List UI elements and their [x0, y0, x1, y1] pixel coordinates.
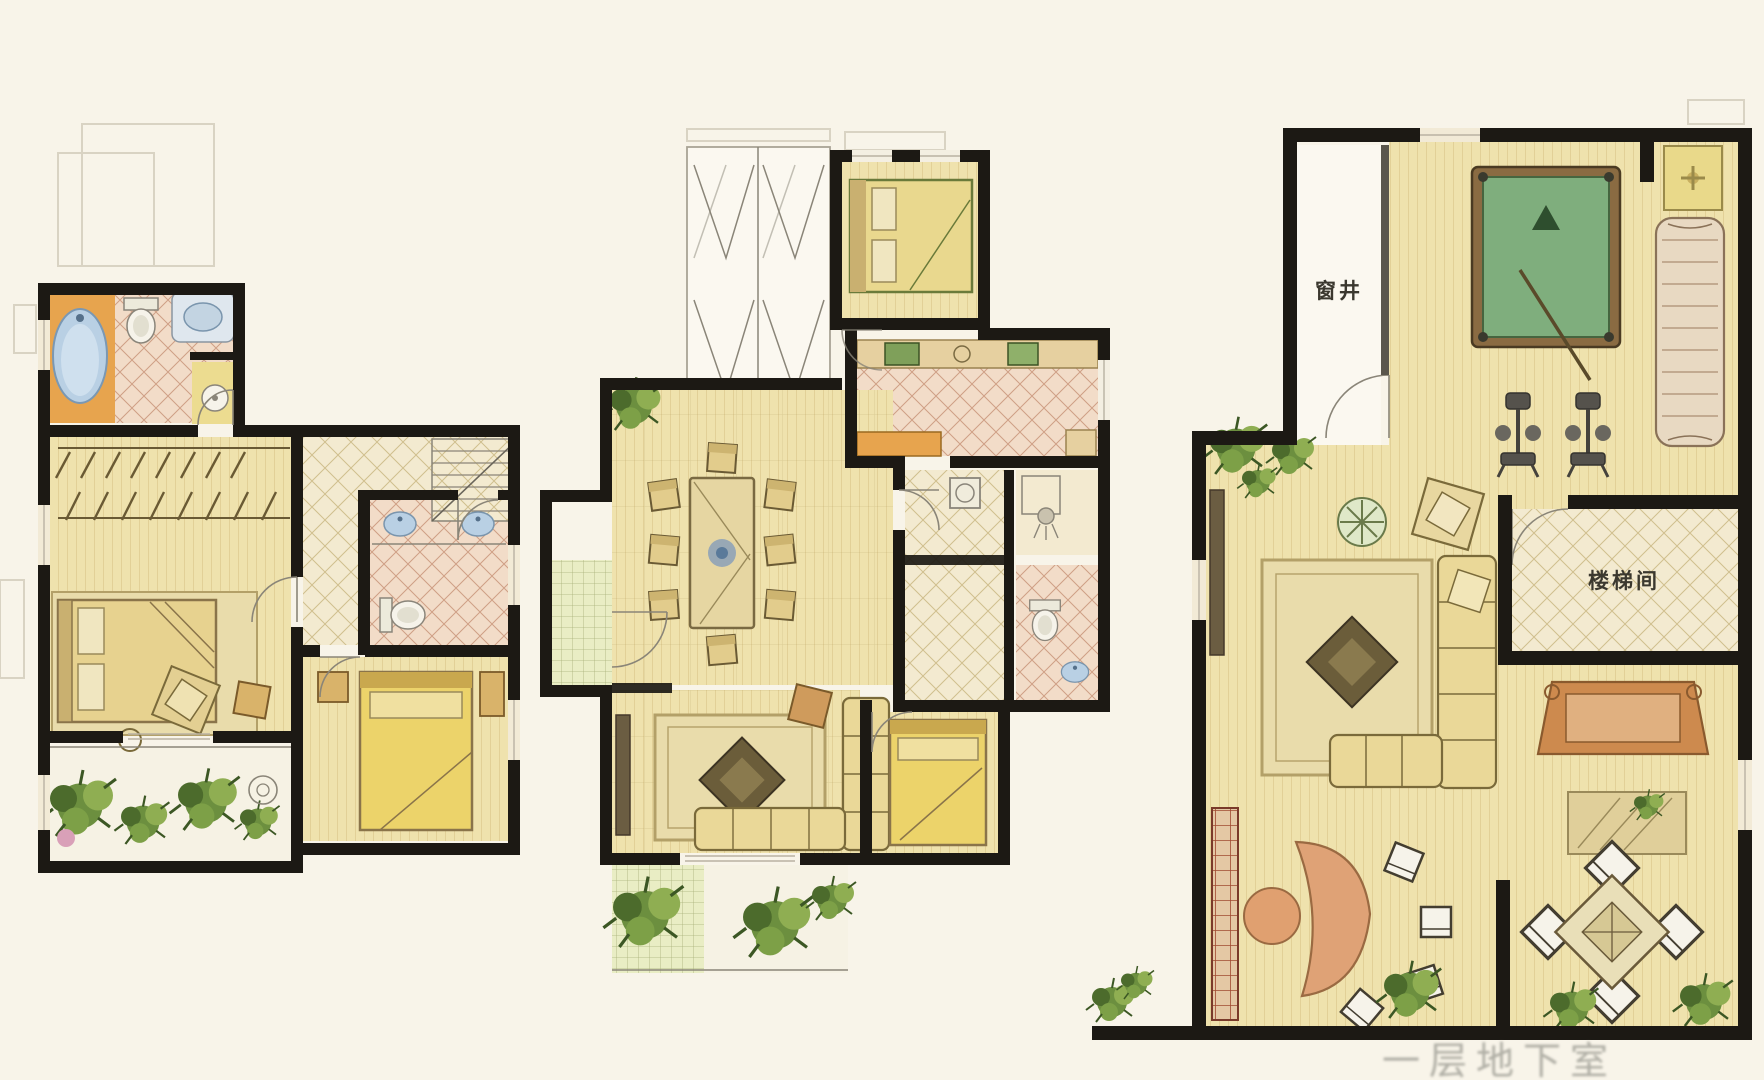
flower-pot — [57, 829, 75, 847]
floorplan-canvas: 窗井 — [0, 0, 1764, 1080]
staircase — [432, 439, 518, 521]
nightstand — [318, 672, 348, 702]
well-partition — [1381, 145, 1389, 375]
fridge — [1066, 430, 1096, 456]
second-toilet — [380, 598, 425, 632]
bathtub — [53, 309, 107, 403]
vanity-sink — [172, 292, 234, 342]
lounge-sofa — [1656, 218, 1724, 446]
single-bed — [360, 672, 472, 830]
stove-appliance — [885, 343, 919, 365]
side-table — [233, 681, 270, 718]
console-desk — [1538, 682, 1708, 754]
appliance — [1008, 343, 1038, 365]
small-rug — [1568, 789, 1686, 854]
counter-orange — [857, 432, 941, 456]
wc-partition-wall — [190, 352, 238, 360]
billiard-table — [1472, 167, 1620, 380]
shower-room-floor — [1016, 470, 1098, 555]
washing-machine — [950, 478, 980, 508]
hall-strip-floor — [303, 490, 358, 645]
bookshelf — [1212, 808, 1238, 1020]
middle-unit-plan — [540, 147, 1110, 973]
toilet — [124, 298, 158, 343]
nightstand — [480, 672, 504, 716]
desk-stool — [1244, 888, 1300, 944]
desk-chair — [1421, 907, 1451, 937]
basement-unit-plan: 窗井 — [1086, 128, 1752, 1040]
top-bedroom-bed — [850, 180, 972, 292]
bottom-bedroom-bed — [890, 720, 986, 845]
tv-console — [1210, 490, 1224, 655]
left-unit-plan — [38, 283, 520, 873]
floorplan-image: 窗井 — [0, 0, 1764, 1080]
wash-basin — [202, 385, 228, 411]
wc-floor — [1016, 565, 1098, 700]
corner-flower-table — [1664, 146, 1722, 210]
stairwell-label: 楼梯间 — [1588, 569, 1660, 593]
tv-cabinet — [616, 715, 630, 835]
side-table-living — [788, 684, 832, 728]
entry-vestibule-floor — [552, 560, 612, 685]
round-plant-table — [1338, 498, 1386, 546]
window-well-label: 窗井 — [1315, 279, 1363, 303]
plan-caption: 一层地下室 — [1382, 1039, 1617, 1080]
